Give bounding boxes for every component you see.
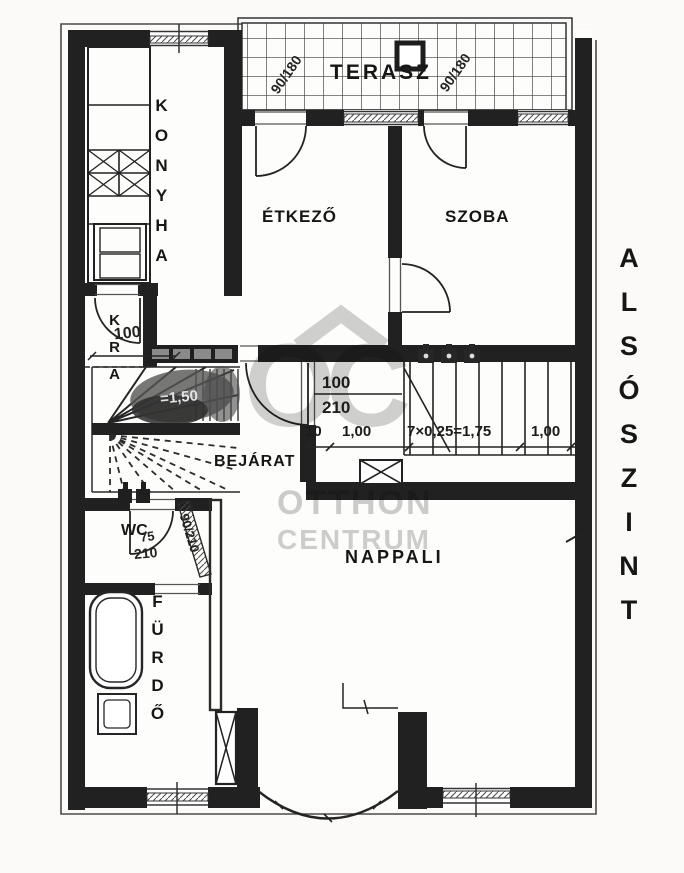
dim-landing-offset: 10 — [305, 424, 322, 439]
dim-stair-width: 1,00 — [531, 424, 560, 439]
dim-landing-width: 1,00 — [342, 424, 371, 439]
room-label-szoba: SZOBA — [445, 208, 510, 225]
room-label-kamra: KRA — [107, 312, 122, 393]
dim-stair-door-width: 100 — [322, 374, 350, 391]
bathtub — [90, 592, 142, 688]
room-label-furdo: FÜRDŐ — [149, 592, 166, 732]
dim-wc-door-width: 75 — [139, 529, 155, 544]
dim-wc-door-height: 210 — [133, 545, 157, 561]
shaft-xbox — [360, 460, 402, 484]
room-label-bejarat: BEJÁRAT — [214, 454, 295, 470]
dim-winder-note: =1,50 — [159, 388, 198, 406]
room-label-terasz: TERASZ — [330, 62, 432, 83]
dim-stair-door-height: 210 — [322, 399, 350, 416]
chimney-column — [216, 712, 236, 784]
room-label-konyha: KONYHA — [153, 96, 170, 276]
floorplan-page: OC OTTHON CENTRUM TERASZ KONYHA ÉTKEZŐ S… — [0, 0, 684, 873]
washbasin — [98, 694, 136, 734]
level-label: ALSÓSZINT — [615, 243, 642, 639]
dim-winder-width: 100 — [113, 325, 141, 344]
landing-edge — [92, 423, 240, 435]
hall-cabinet-row — [147, 345, 238, 363]
room-label-etkezo: ÉTKEZŐ — [262, 208, 337, 225]
ink-smudge — [204, 366, 240, 422]
dim-stair-run: 7×0,25=1,75 — [407, 424, 491, 439]
room-label-nappali: NAPPALI — [345, 548, 444, 566]
wall-fixtures — [418, 344, 480, 363]
